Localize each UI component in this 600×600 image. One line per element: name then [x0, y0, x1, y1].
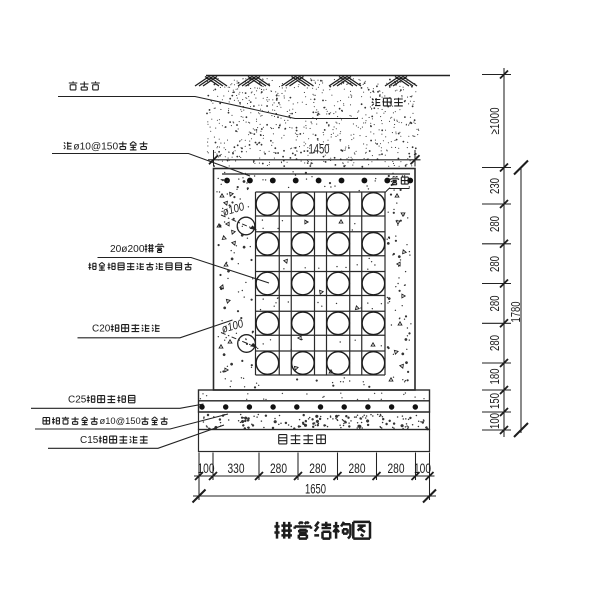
- svg-text:280: 280: [487, 256, 502, 272]
- svg-text:1450: 1450: [309, 141, 330, 157]
- svg-text:280: 280: [388, 461, 405, 476]
- svg-text:180: 180: [487, 369, 502, 385]
- svg-text:C25: C25: [68, 395, 87, 406]
- svg-text:280: 280: [309, 461, 326, 476]
- svg-text:280: 280: [487, 335, 502, 351]
- svg-text:1780: 1780: [508, 302, 523, 323]
- svg-text:100: 100: [414, 461, 431, 476]
- svg-text:150: 150: [487, 393, 502, 409]
- svg-text:20ø200: 20ø200: [110, 244, 145, 255]
- svg-text:280: 280: [349, 461, 366, 476]
- svg-text:ø10@150: ø10@150: [100, 415, 141, 426]
- svg-text:280: 280: [270, 461, 287, 476]
- svg-text:230: 230: [487, 178, 502, 194]
- svg-text:≥1000: ≥1000: [487, 108, 502, 135]
- svg-text:280: 280: [487, 296, 502, 312]
- svg-text:1650: 1650: [305, 481, 326, 497]
- svg-text:100: 100: [487, 413, 502, 429]
- svg-text:ø10@150: ø10@150: [73, 141, 118, 152]
- svg-text:280: 280: [487, 216, 502, 232]
- svg-text:C15: C15: [80, 435, 99, 446]
- svg-text:330: 330: [228, 461, 245, 476]
- svg-text:C20: C20: [92, 324, 111, 335]
- svg-text:100: 100: [198, 461, 215, 476]
